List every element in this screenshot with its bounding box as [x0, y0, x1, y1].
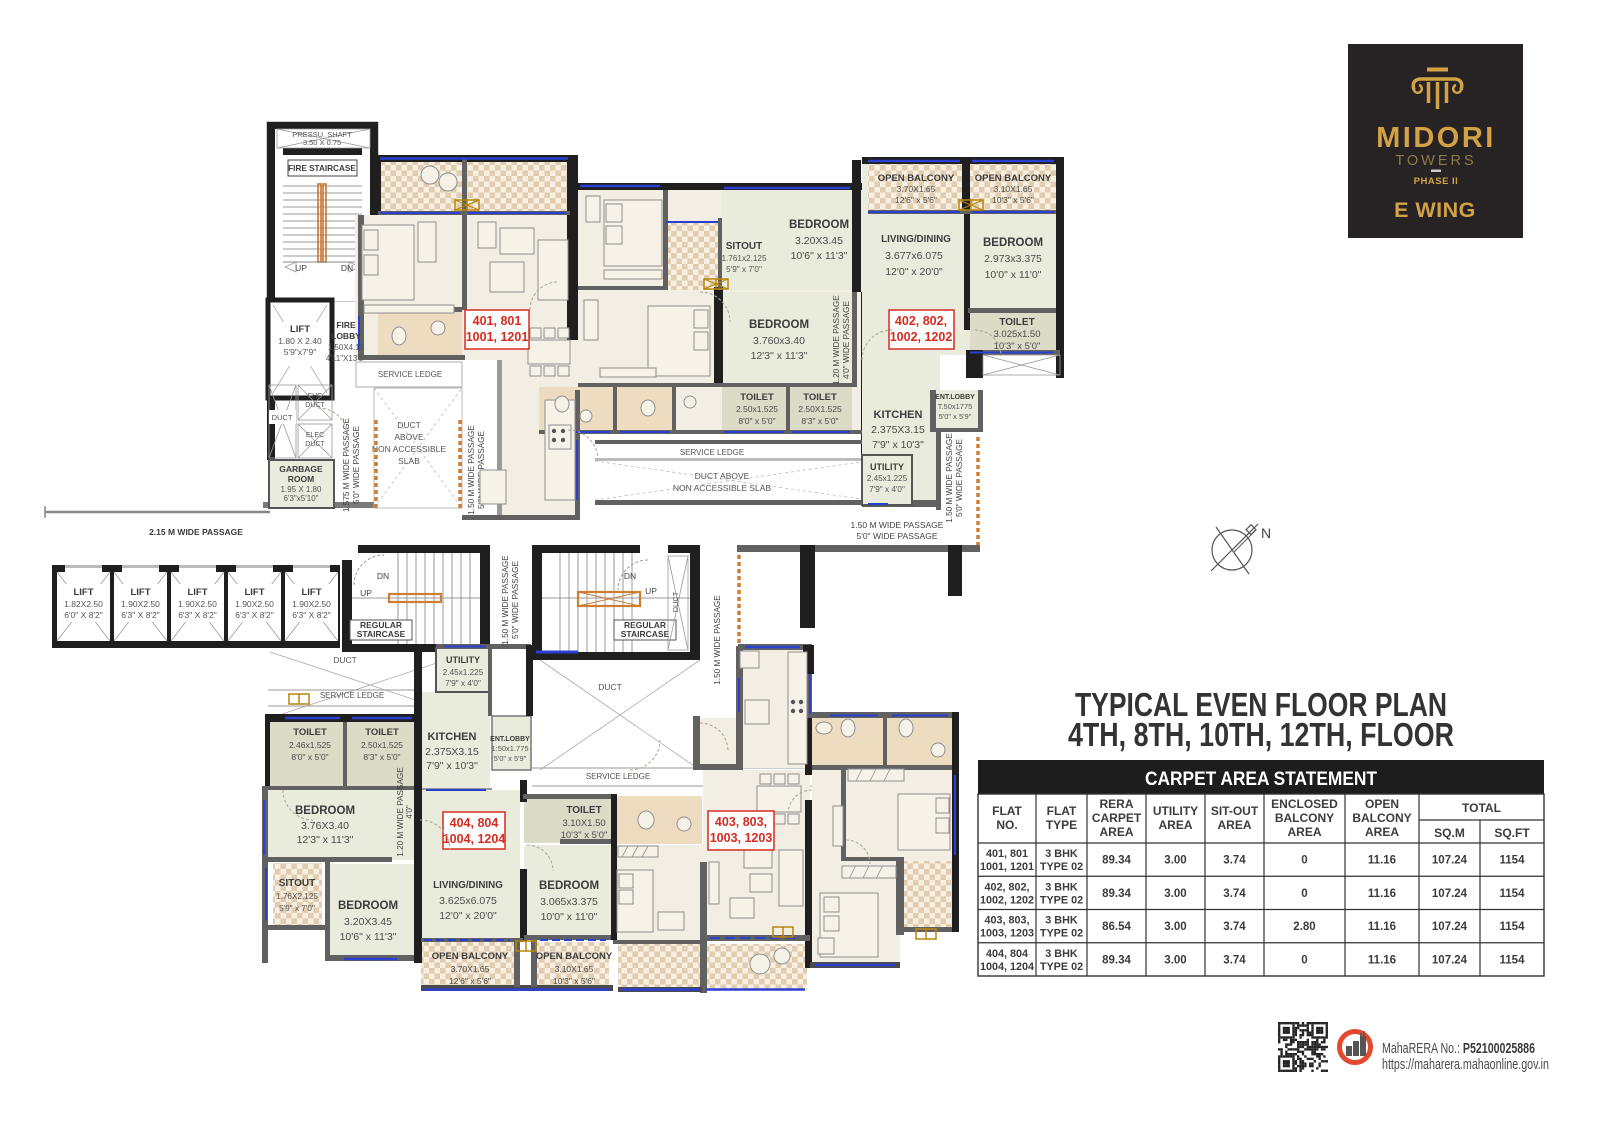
svg-text:DN: DN: [341, 263, 353, 273]
svg-text:6'3"x5'10": 6'3"x5'10": [284, 494, 319, 503]
svg-text:8'3" x 5'0": 8'3" x 5'0": [801, 416, 838, 426]
svg-text:3 BHK: 3 BHK: [1045, 948, 1078, 960]
svg-text:1.82X2.50: 1.82X2.50: [64, 599, 103, 609]
svg-text:89.34: 89.34: [1102, 855, 1131, 867]
svg-text:1.50 M WIDE PASSAGE: 1.50 M WIDE PASSAGE: [501, 555, 510, 645]
svg-text:5'0" WIDE PASSAGE: 5'0" WIDE PASSAGE: [511, 560, 520, 639]
svg-text:1.90X2.50: 1.90X2.50: [178, 599, 217, 609]
svg-text:TOTAL: TOTAL: [1462, 801, 1501, 815]
svg-text:TOILET: TOILET: [365, 727, 399, 738]
svg-text:1.761x2.125: 1.761x2.125: [721, 254, 767, 263]
svg-text:CARPET: CARPET: [1092, 811, 1142, 825]
svg-text:BALCONY: BALCONY: [1352, 811, 1411, 825]
svg-text:1.90X2.50: 1.90X2.50: [121, 599, 160, 609]
svg-text:1.50 M WIDE PASSAGE: 1.50 M WIDE PASSAGE: [467, 425, 476, 515]
svg-text:1003, 1203: 1003, 1203: [980, 928, 1034, 940]
svg-text:4TH, 8TH, 10TH, 12TH, FLOOR: 4TH, 8TH, 10TH, 12TH, FLOOR: [1068, 716, 1454, 753]
svg-text:402, 802,: 402, 802,: [984, 881, 1029, 893]
svg-text:3.00: 3.00: [1164, 921, 1186, 933]
svg-text:6'3" X 8'2": 6'3" X 8'2": [235, 610, 274, 620]
svg-text:8'0" x 5'0": 8'0" x 5'0": [291, 752, 328, 762]
svg-text:12'0" x 20'0": 12'0" x 20'0": [439, 910, 497, 922]
svg-text:1.50 M WIDE PASSAGE: 1.50 M WIDE PASSAGE: [851, 520, 944, 530]
svg-text:403, 803,: 403, 803,: [984, 915, 1029, 927]
svg-text:TOILET: TOILET: [999, 317, 1034, 328]
svg-text:1002, 1202: 1002, 1202: [890, 330, 953, 344]
svg-text:SLAB: SLAB: [398, 456, 420, 466]
svg-text:403, 803,: 403, 803,: [715, 815, 767, 829]
svg-text:5'0" WIDE PASSAGE: 5'0" WIDE PASSAGE: [955, 438, 964, 517]
svg-text:1.20 M WIDE PASSAGE: 1.20 M WIDE PASSAGE: [832, 295, 841, 385]
svg-text:1154: 1154: [1500, 888, 1526, 900]
svg-text:DUCT: DUCT: [397, 420, 421, 430]
svg-text:1.80 X 2.40: 1.80 X 2.40: [278, 336, 322, 346]
svg-text:107.24: 107.24: [1432, 921, 1468, 933]
svg-text:LIFT: LIFT: [301, 587, 321, 598]
svg-text:12'6" x 5'6": 12'6" x 5'6": [449, 976, 491, 986]
svg-text:10'3" x 5'6": 10'3" x 5'6": [992, 195, 1034, 205]
svg-text:1004, 1204: 1004, 1204: [443, 832, 506, 846]
svg-text:1001, 1201: 1001, 1201: [466, 330, 529, 344]
svg-text:1003, 1203: 1003, 1203: [710, 831, 773, 845]
svg-text:ENT.LOBBY: ENT.LOBBY: [490, 736, 530, 743]
svg-text:KITCHEN: KITCHEN: [428, 731, 477, 743]
svg-text:AREA: AREA: [1158, 818, 1192, 832]
svg-text:ROOM: ROOM: [288, 474, 314, 484]
svg-text:LIVING/DINING: LIVING/DINING: [433, 880, 503, 891]
svg-text:T.50x1775: T.50x1775: [938, 402, 973, 411]
svg-text:11.16: 11.16: [1368, 855, 1396, 867]
svg-text:10'6" x 11'3": 10'6" x 11'3": [791, 250, 848, 262]
svg-text:SERVICE LEDGE: SERVICE LEDGE: [680, 448, 744, 457]
svg-text:RERA: RERA: [1099, 797, 1133, 811]
svg-text:N: N: [1261, 525, 1271, 541]
svg-text:SERVICE LEDGE: SERVICE LEDGE: [320, 691, 384, 700]
svg-text:2.50x1.525: 2.50x1.525: [736, 404, 778, 414]
svg-text:3.10X1.50: 3.10X1.50: [562, 818, 605, 829]
svg-text:OPEN BALCONY: OPEN BALCONY: [878, 173, 955, 184]
svg-text:2.375X3.15: 2.375X3.15: [425, 746, 479, 758]
svg-text:6'3" X 8'2": 6'3" X 8'2": [121, 610, 160, 620]
svg-text:NON ACCESSIBLE SLAB: NON ACCESSIBLE SLAB: [673, 483, 772, 493]
svg-text:NO.: NO.: [996, 818, 1017, 832]
svg-text:DUCT: DUCT: [305, 441, 325, 448]
svg-text:1004, 1204: 1004, 1204: [980, 961, 1034, 973]
svg-text:1.76X2.125: 1.76X2.125: [276, 892, 318, 901]
svg-text:https://maharera.mahaonline.go: https://maharera.mahaonline.gov.in: [1382, 1057, 1549, 1073]
svg-text:BEDROOM: BEDROOM: [338, 900, 398, 912]
svg-text:3.70X1.65: 3.70X1.65: [451, 964, 490, 974]
svg-text:BEDROOM: BEDROOM: [983, 237, 1043, 249]
svg-text:10'3" x 5'0": 10'3" x 5'0": [994, 341, 1041, 352]
svg-text:DN: DN: [624, 571, 636, 581]
svg-text:ENCLOSED: ENCLOSED: [1271, 797, 1338, 811]
svg-text:LOBBY: LOBBY: [331, 331, 361, 341]
svg-text:2.50x1.525: 2.50x1.525: [361, 740, 403, 750]
svg-text:7'9" x 4'0": 7'9" x 4'0": [445, 679, 481, 688]
svg-text:8'3" x 5'0": 8'3" x 5'0": [363, 752, 400, 762]
svg-text:5'0" x 5'9": 5'0" x 5'9": [939, 412, 972, 421]
svg-text:4'0": 4'0": [405, 805, 414, 819]
svg-text:3.10X1.65: 3.10X1.65: [994, 184, 1033, 194]
svg-text:1001, 1201: 1001, 1201: [980, 861, 1034, 873]
svg-text:SQ.M: SQ.M: [1434, 826, 1465, 840]
svg-text:1154: 1154: [1500, 921, 1526, 933]
svg-text:5'9" x 7'0": 5'9" x 7'0": [279, 904, 315, 913]
svg-text:10'3" x 5'6": 10'3" x 5'6": [553, 976, 595, 986]
svg-text:3 BHK: 3 BHK: [1045, 881, 1078, 893]
svg-text:CARPET AREA STATEMENT: CARPET AREA STATEMENT: [1145, 768, 1377, 790]
svg-text:ELEC: ELEC: [306, 432, 324, 439]
svg-text:3.74: 3.74: [1223, 888, 1246, 900]
svg-text:1.90X2.50: 1.90X2.50: [235, 599, 274, 609]
svg-text:12'3" x 11'3": 12'3" x 11'3": [751, 350, 808, 362]
svg-text:402, 802,: 402, 802,: [895, 314, 947, 328]
svg-text:4'11"X13'5": 4'11"X13'5": [326, 354, 366, 363]
svg-text:10'6" x 11'3": 10'6" x 11'3": [340, 931, 397, 943]
svg-text:OPEN: OPEN: [1365, 797, 1399, 811]
svg-text:LIVING/DINING: LIVING/DINING: [881, 234, 951, 245]
svg-text:TOILET: TOILET: [293, 727, 327, 738]
svg-text:0: 0: [1301, 888, 1307, 900]
svg-text:1154: 1154: [1500, 855, 1526, 867]
svg-text:12'3" x 11'3": 12'3" x 11'3": [297, 834, 354, 846]
svg-text:3.00: 3.00: [1164, 888, 1186, 900]
svg-text:7'9" x 10'3": 7'9" x 10'3": [872, 439, 924, 451]
svg-text:UP: UP: [360, 588, 372, 598]
svg-text:AREA: AREA: [1287, 825, 1321, 839]
svg-text:1002, 1202: 1002, 1202: [980, 894, 1034, 906]
svg-text:TOILET: TOILET: [803, 392, 837, 403]
svg-text:AREA: AREA: [1217, 818, 1251, 832]
svg-text:1.95 X 1.80: 1.95 X 1.80: [281, 485, 322, 494]
svg-text:2.973x3.375: 2.973x3.375: [984, 253, 1042, 265]
svg-text:MIDORI: MIDORI: [1376, 122, 1496, 154]
svg-text:DUCT: DUCT: [272, 413, 293, 422]
svg-text:2.46x1.525: 2.46x1.525: [289, 740, 331, 750]
svg-text:STAIRCASE: STAIRCASE: [621, 629, 670, 639]
svg-text:FLAT: FLAT: [992, 804, 1022, 818]
svg-text:1.20 M WIDE PASSAGE: 1.20 M WIDE PASSAGE: [396, 767, 405, 857]
svg-text:3.20X3.45: 3.20X3.45: [344, 916, 392, 928]
svg-text:3.74: 3.74: [1223, 954, 1246, 966]
svg-text:SITOUT: SITOUT: [726, 241, 762, 252]
svg-text:89.34: 89.34: [1102, 888, 1131, 900]
svg-text:89.34: 89.34: [1102, 954, 1131, 966]
svg-text:2.15 M WIDE PASSAGE: 2.15 M WIDE PASSAGE: [149, 527, 243, 537]
svg-text:SQ.FT: SQ.FT: [1494, 826, 1530, 840]
svg-text:UTILITY: UTILITY: [870, 462, 904, 472]
svg-text:1154: 1154: [1500, 954, 1526, 966]
svg-text:DN: DN: [377, 571, 389, 581]
svg-text:2.45x1.225: 2.45x1.225: [867, 474, 908, 483]
svg-text:TYPE 02: TYPE 02: [1040, 861, 1083, 873]
svg-text:404, 804: 404, 804: [986, 948, 1028, 960]
svg-text:0: 0: [1301, 855, 1307, 867]
svg-text:2.80: 2.80: [1293, 921, 1315, 933]
svg-text:LIFT: LIFT: [290, 324, 310, 335]
svg-text:6'3" X 8'2": 6'3" X 8'2": [178, 610, 217, 620]
svg-text:DUCT ABOVE: DUCT ABOVE: [695, 471, 750, 481]
svg-text:7'9" x 10'3": 7'9" x 10'3": [426, 760, 478, 772]
svg-text:TOILET: TOILET: [740, 392, 774, 403]
svg-text:2.45x1.225: 2.45x1.225: [443, 668, 484, 677]
svg-text:DUCT: DUCT: [671, 591, 680, 612]
svg-text:1.90X2.50: 1.90X2.50: [292, 599, 331, 609]
svg-text:12'6" x 5'6": 12'6" x 5'6": [895, 195, 937, 205]
svg-text:FLAT: FLAT: [1047, 804, 1077, 818]
svg-text:11.16: 11.16: [1368, 954, 1396, 966]
svg-text:7'9" x 4'0": 7'9" x 4'0": [869, 485, 905, 494]
svg-text:3.00: 3.00: [1164, 855, 1186, 867]
svg-text:TYPE 02: TYPE 02: [1040, 894, 1083, 906]
svg-text:DUCT: DUCT: [305, 402, 325, 409]
svg-text:SERVICE LEDGE: SERVICE LEDGE: [378, 370, 442, 379]
svg-text:3.74: 3.74: [1223, 921, 1246, 933]
svg-text:UTILITY: UTILITY: [446, 655, 480, 665]
svg-text:TYPE 02: TYPE 02: [1040, 928, 1083, 940]
svg-text:11.16: 11.16: [1368, 888, 1396, 900]
svg-text:0: 0: [1301, 954, 1307, 966]
svg-text:BEDROOM: BEDROOM: [749, 319, 809, 331]
svg-text:BEDROOM: BEDROOM: [539, 880, 599, 892]
svg-text:107.24: 107.24: [1432, 888, 1468, 900]
svg-text:3.677x6.075: 3.677x6.075: [885, 250, 943, 262]
svg-text:E WING: E WING: [1394, 198, 1476, 222]
svg-text:3.00: 3.00: [1164, 954, 1186, 966]
svg-text:LIFT: LIFT: [244, 587, 264, 598]
svg-text:6'3" X 8'2": 6'3" X 8'2": [292, 610, 331, 620]
svg-text:1:50x1.775: 1:50x1.775: [491, 744, 528, 753]
svg-text:8'0" x 5'0": 8'0" x 5'0": [738, 416, 775, 426]
svg-text:ABOVE: ABOVE: [394, 432, 424, 442]
svg-text:5'0" x 5'9": 5'0" x 5'9": [494, 754, 527, 763]
svg-text:GARBAGE: GARBAGE: [279, 464, 323, 474]
svg-text:TOWERS: TOWERS: [1395, 153, 1476, 169]
svg-text:3.10X1.65: 3.10X1.65: [555, 964, 594, 974]
svg-text:UTILITY: UTILITY: [1153, 804, 1198, 818]
svg-text:5'0" WIDE PASSAGE: 5'0" WIDE PASSAGE: [352, 425, 361, 504]
svg-text:BALCONY: BALCONY: [1275, 811, 1334, 825]
svg-text:MahaRERA No.: P52100025886: MahaRERA No.: P52100025886: [1382, 1041, 1535, 1057]
svg-text:2.375X3.15: 2.375X3.15: [871, 424, 925, 436]
svg-text:UP: UP: [645, 586, 657, 596]
svg-text:1.50 M WIDE PASSAGE: 1.50 M WIDE PASSAGE: [713, 595, 722, 685]
svg-text:KITCHEN: KITCHEN: [874, 409, 923, 421]
svg-text:DUCT: DUCT: [598, 682, 622, 692]
svg-text:OPEN BALCONY: OPEN BALCONY: [432, 951, 509, 962]
svg-text:LIFT: LIFT: [187, 587, 207, 598]
svg-text:3 BHK: 3 BHK: [1045, 848, 1078, 860]
svg-text:5'9" x 7'0": 5'9" x 7'0": [726, 265, 762, 274]
svg-text:SIT-OUT: SIT-OUT: [1211, 804, 1259, 818]
svg-text:11.16: 11.16: [1368, 921, 1396, 933]
svg-text:TOILET: TOILET: [566, 805, 601, 816]
svg-text:LIFT: LIFT: [130, 587, 150, 598]
svg-text:AREA: AREA: [1365, 825, 1399, 839]
svg-text:STAIRCASE: STAIRCASE: [357, 629, 406, 639]
svg-text:86.54: 86.54: [1102, 921, 1131, 933]
svg-text:5'0" WIDE PASSAGE: 5'0" WIDE PASSAGE: [856, 531, 937, 541]
svg-text:3.625x6.075: 3.625x6.075: [439, 895, 497, 907]
svg-text:3.76X3.40: 3.76X3.40: [301, 820, 349, 832]
svg-text:OPEN BALCONY: OPEN BALCONY: [975, 173, 1052, 184]
svg-text:SERVICE LEDGE: SERVICE LEDGE: [586, 772, 650, 781]
svg-text:UP: UP: [295, 263, 307, 273]
svg-text:2.50X1.525: 2.50X1.525: [798, 404, 842, 414]
svg-text:10'0" x 11'0": 10'0" x 11'0": [541, 911, 598, 923]
svg-text:401, 801: 401, 801: [473, 314, 522, 328]
svg-text:3.760x3.40: 3.760x3.40: [753, 335, 805, 347]
svg-text:107.24: 107.24: [1432, 954, 1468, 966]
svg-text:NON ACCESSIBLE: NON ACCESSIBLE: [372, 444, 446, 454]
svg-text:BEDROOM: BEDROOM: [789, 219, 849, 231]
svg-text:SITOUT: SITOUT: [279, 878, 315, 889]
svg-text:DUCT: DUCT: [333, 655, 357, 665]
svg-text:1.50X4.10: 1.50X4.10: [328, 343, 365, 352]
svg-text:3.065x3.375: 3.065x3.375: [540, 896, 598, 908]
svg-text:1.50 M WIDE PASSAGE: 1.50 M WIDE PASSAGE: [945, 433, 954, 523]
svg-text:FIRE STAIRCASE: FIRE STAIRCASE: [288, 164, 356, 173]
svg-text:ENT.LOBBY: ENT.LOBBY: [935, 394, 975, 401]
svg-text:OPEN BALCONY: OPEN BALCONY: [536, 951, 613, 962]
svg-text:4'0" WIDE PASSAGE: 4'0" WIDE PASSAGE: [842, 300, 851, 379]
svg-text:3.20X3.45: 3.20X3.45: [795, 235, 843, 247]
svg-text:10'0" x 11'0": 10'0" x 11'0": [985, 269, 1042, 281]
svg-text:3.70X1.65: 3.70X1.65: [897, 184, 936, 194]
svg-text:LIFT: LIFT: [73, 587, 93, 598]
svg-text:TYPE: TYPE: [1046, 818, 1077, 832]
svg-text:3.74: 3.74: [1223, 855, 1246, 867]
svg-text:PHASE II: PHASE II: [1414, 176, 1459, 187]
svg-text:AREA: AREA: [1099, 825, 1133, 839]
svg-text:107.24: 107.24: [1432, 855, 1468, 867]
svg-text:401, 801: 401, 801: [986, 848, 1028, 860]
svg-text:FHC: FHC: [308, 393, 322, 400]
svg-text:1.575 M WIDE PASSAGE: 1.575 M WIDE PASSAGE: [342, 417, 351, 512]
svg-text:404, 804: 404, 804: [450, 816, 499, 830]
svg-text:TYPE 02: TYPE 02: [1040, 961, 1083, 973]
svg-text:FIRE: FIRE: [336, 320, 356, 330]
svg-text:3 BHK: 3 BHK: [1045, 915, 1078, 927]
svg-text:3.50 X 0.75: 3.50 X 0.75: [303, 138, 341, 147]
svg-text:10'3" x 5'0": 10'3" x 5'0": [561, 830, 608, 841]
svg-text:3.025x1.50: 3.025x1.50: [993, 329, 1040, 340]
svg-text:6'0" X 8'2": 6'0" X 8'2": [64, 610, 103, 620]
svg-text:12'0" x 20'0": 12'0" x 20'0": [885, 266, 943, 278]
svg-text:BEDROOM: BEDROOM: [295, 805, 355, 817]
svg-text:5'9"x7'9": 5'9"x7'9": [284, 347, 316, 357]
